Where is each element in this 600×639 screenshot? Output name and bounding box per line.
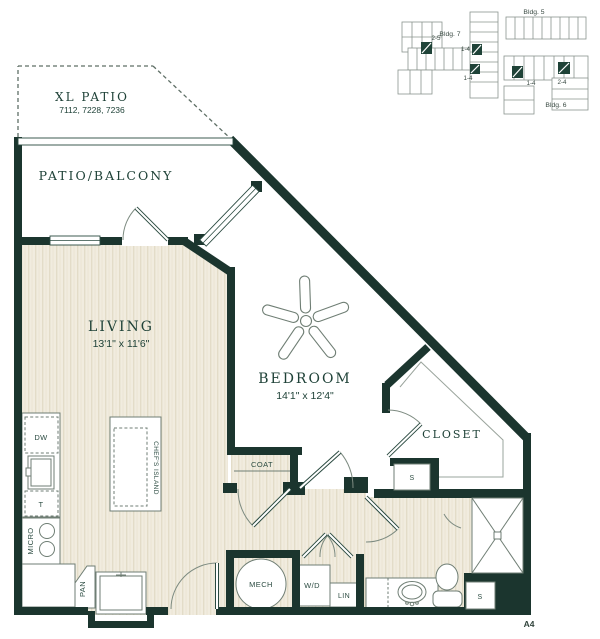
bldg6-label: Bldg. 6 bbox=[545, 102, 566, 109]
xl-patio-label: XL PATIO bbox=[55, 90, 129, 104]
bldg5-label: Bldg. 5 bbox=[523, 9, 544, 16]
bldg7-label: Bldg. 7 bbox=[439, 31, 460, 38]
lin-label: LIN bbox=[338, 593, 350, 600]
bldg7-unit-1: 2-5 bbox=[432, 35, 442, 42]
mech-label: MECH bbox=[249, 580, 273, 589]
patio-label: PATIO/BALCONY bbox=[39, 168, 174, 183]
bath-shelf-label: S bbox=[477, 594, 482, 601]
bldg7-unit-3: 1-4 bbox=[464, 75, 474, 82]
bldg5-footprint bbox=[506, 17, 586, 39]
shower bbox=[472, 498, 523, 573]
patio-railing bbox=[18, 138, 233, 145]
bldg6-unit-2: 2-4 bbox=[558, 79, 568, 86]
xl-patio-units: 7112, 7228, 7236 bbox=[59, 105, 125, 115]
hall-shelf-label: S bbox=[409, 475, 414, 482]
bldg6-unit-1: 1-4 bbox=[527, 80, 537, 87]
dw-label: DW bbox=[34, 433, 48, 442]
floor-plan-sheet: XL PATIO 7112, 7228, 7236 PATIO/BALCONY … bbox=[0, 0, 600, 639]
sheet-code: A4 bbox=[524, 619, 535, 629]
trash-label: T bbox=[39, 500, 44, 509]
closet-label: CLOSET bbox=[422, 428, 482, 441]
floor-plan-svg: XL PATIO 7112, 7228, 7236 PATIO/BALCONY … bbox=[0, 0, 600, 639]
living-label: LIVING bbox=[88, 319, 154, 335]
bedroom-label: BEDROOM bbox=[258, 371, 352, 387]
micro-label: MICRO bbox=[26, 528, 35, 555]
chefs-island-label: CHEF'S ISLAND bbox=[152, 441, 159, 495]
bedroom-dims: 14'1" x 12'4" bbox=[276, 390, 334, 402]
wd-label: W/D bbox=[304, 581, 320, 590]
bldg7-unit-2: 1-4 bbox=[461, 46, 471, 53]
living-window bbox=[50, 236, 100, 245]
pan-label: PAN bbox=[78, 581, 87, 597]
coat-label: COAT bbox=[251, 460, 273, 469]
living-dims: 13'1" x 11'6" bbox=[93, 338, 150, 350]
